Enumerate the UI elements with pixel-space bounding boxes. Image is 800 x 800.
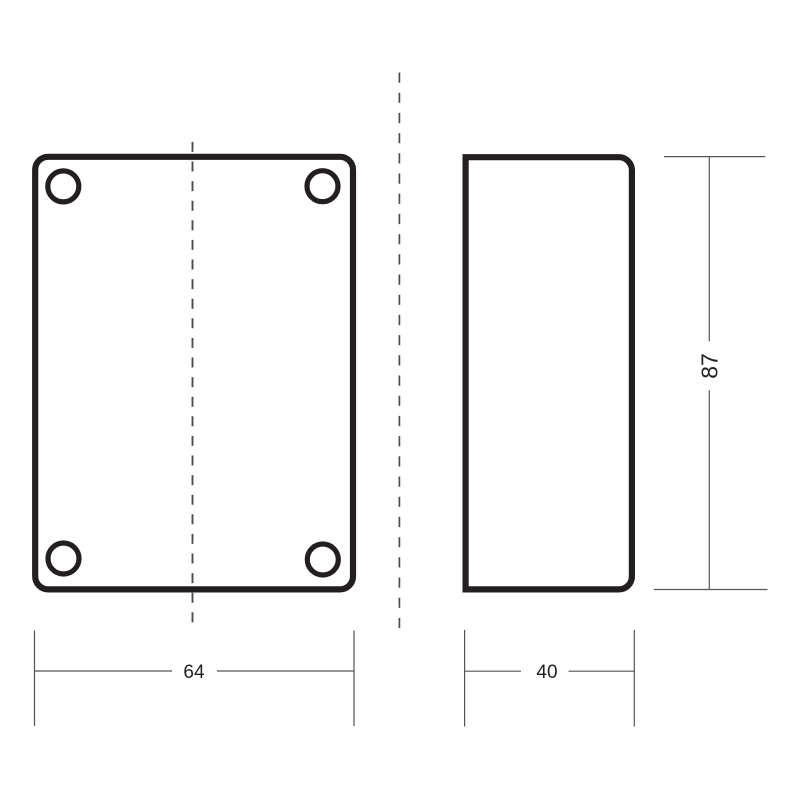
svg-text:87: 87 (697, 353, 723, 379)
svg-text:64: 64 (183, 662, 205, 683)
svg-text:40: 40 (536, 662, 557, 683)
